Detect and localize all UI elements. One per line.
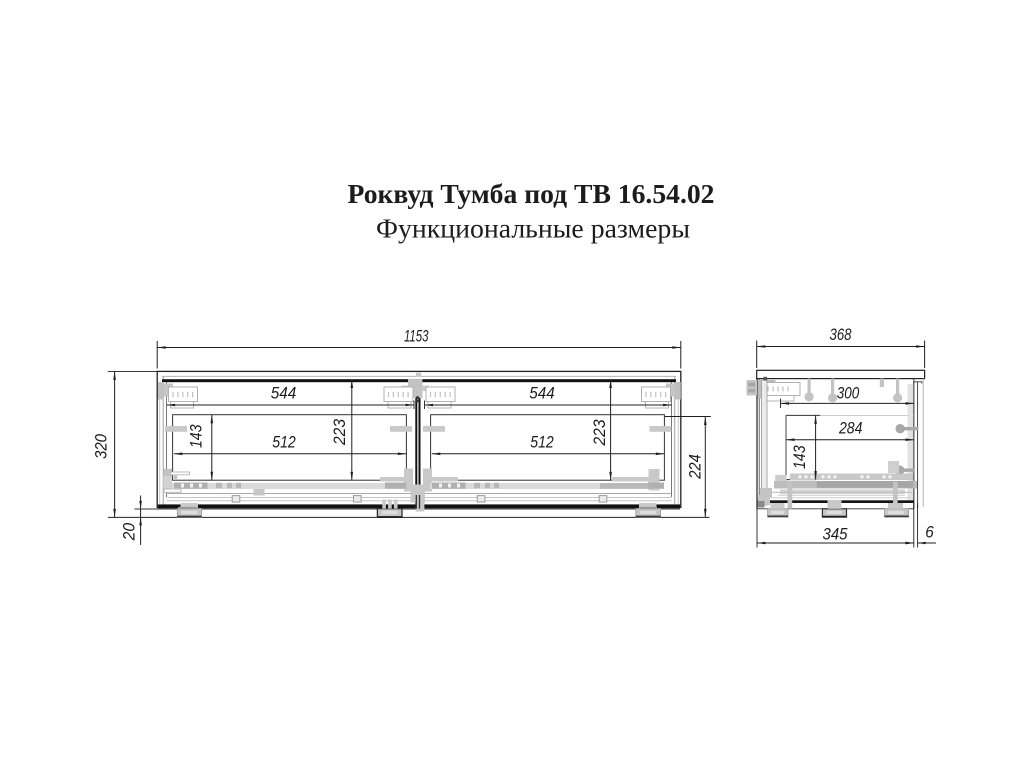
svg-text:223: 223 bbox=[330, 419, 349, 446]
svg-text:544: 544 bbox=[529, 384, 555, 403]
svg-text:300: 300 bbox=[837, 384, 860, 403]
svg-text:1153: 1153 bbox=[404, 326, 429, 345]
svg-text:512: 512 bbox=[272, 433, 296, 452]
svg-text:143: 143 bbox=[790, 445, 809, 469]
svg-text:143: 143 bbox=[187, 424, 206, 448]
svg-text:Функциональные размеры: Функциональные размеры bbox=[376, 214, 690, 244]
svg-text:512: 512 bbox=[530, 433, 554, 452]
svg-text:368: 368 bbox=[830, 325, 852, 344]
svg-text:345: 345 bbox=[823, 524, 848, 543]
svg-text:544: 544 bbox=[271, 384, 297, 403]
svg-text:Роквуд Тумба под ТВ 16.54.02: Роквуд Тумба под ТВ 16.54.02 bbox=[348, 178, 715, 209]
svg-text:320: 320 bbox=[92, 434, 111, 459]
svg-text:284: 284 bbox=[838, 419, 862, 438]
svg-text:224: 224 bbox=[685, 454, 704, 479]
svg-text:20: 20 bbox=[119, 522, 138, 541]
svg-text:223: 223 bbox=[590, 419, 609, 446]
svg-text:6: 6 bbox=[925, 523, 934, 542]
